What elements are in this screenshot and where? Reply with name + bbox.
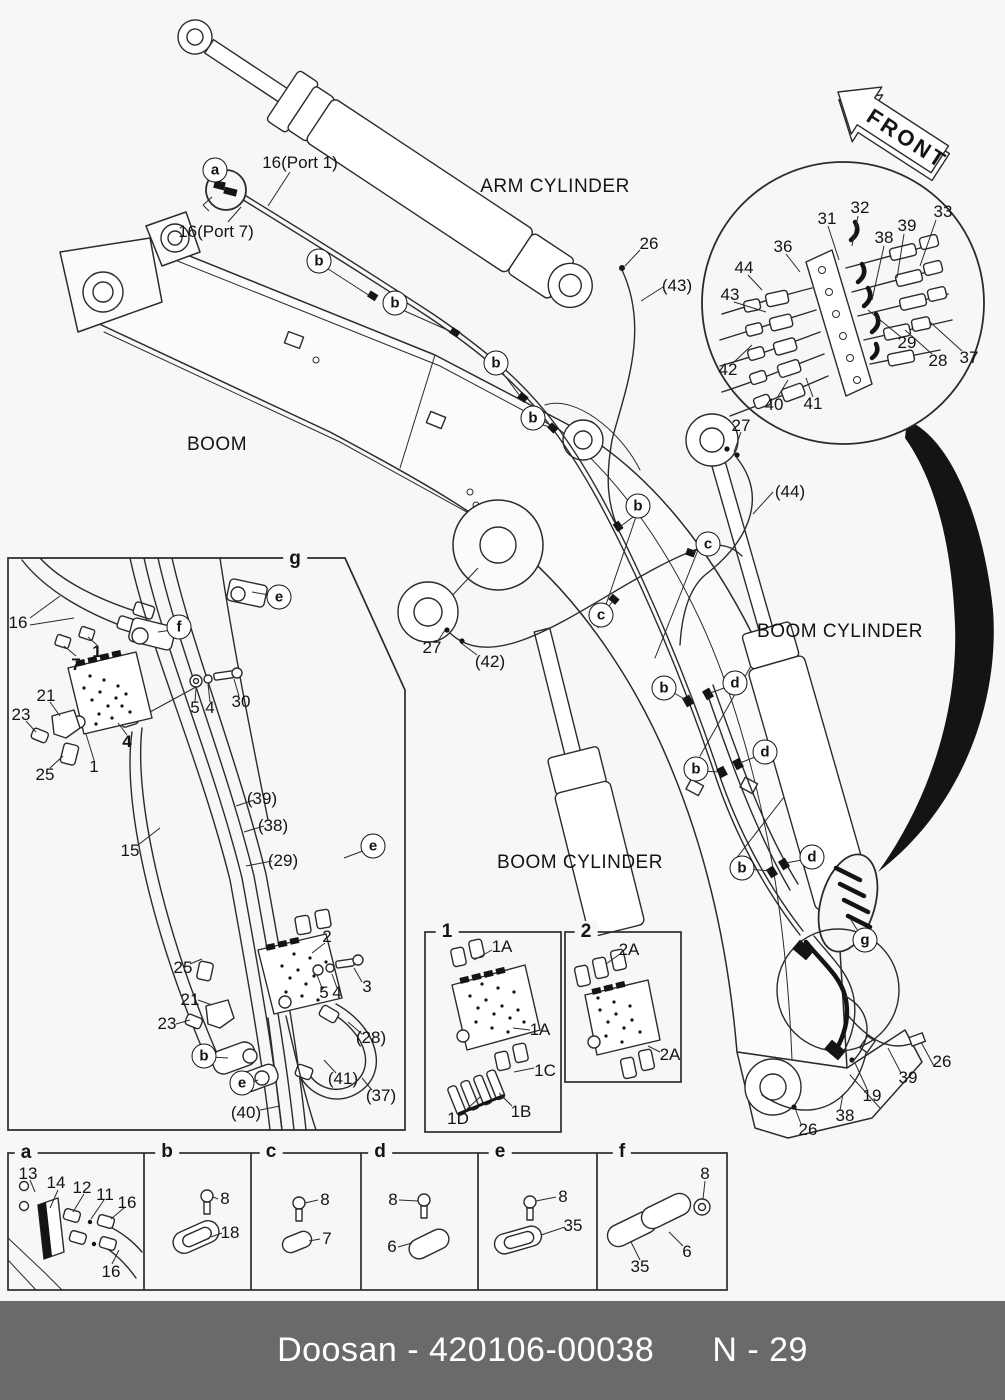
part-label: 12 [73, 1178, 92, 1198]
part-label: 4 [332, 983, 341, 1003]
part-label: 8 [558, 1187, 567, 1207]
callout-circle-b: b [684, 757, 709, 782]
part-label: 1 [89, 757, 98, 777]
part-label: 1 [92, 642, 101, 662]
callout-circle-g: g [853, 928, 878, 953]
part-label: 7 [322, 1229, 331, 1249]
component-label: BOOM [187, 434, 247, 456]
part-label: 35 [564, 1216, 583, 1236]
part-label: 4 [205, 698, 214, 718]
part-label: 15 [121, 841, 140, 861]
callout-circle-f: f [167, 615, 192, 640]
parts-diagram-page: FRONT [0, 0, 1005, 1400]
part-label: (43) [662, 276, 692, 296]
callout-circle-c: c [696, 532, 721, 557]
part-label: (42) [475, 652, 505, 672]
part-label: 42 [719, 360, 738, 380]
part-label: 3 [362, 977, 371, 997]
component-label: ARM CYLINDER [480, 176, 630, 198]
part-label: 28 [929, 351, 948, 371]
part-label: 41 [804, 394, 823, 414]
part-label: 25 [36, 765, 55, 785]
section-tag-f: f [613, 1141, 631, 1163]
part-label: 1B [511, 1102, 532, 1122]
component-label: BOOM CYLINDER [497, 852, 663, 874]
part-label: 39 [898, 216, 917, 236]
callout-circle-a: a [203, 158, 228, 183]
document-id: Doosan - 420106-00038 [277, 1331, 654, 1370]
part-label: (28) [356, 1028, 386, 1048]
part-label: 21 [37, 686, 56, 706]
label-overlay: 16(Port 1)16(Port 7)26(43)27(44)27(42)26… [0, 0, 1005, 1301]
part-label: 27 [732, 416, 751, 436]
part-label: 7 [71, 655, 80, 675]
part-label: 8 [220, 1189, 229, 1209]
part-label: (38) [258, 816, 288, 836]
part-label: 16 [9, 613, 28, 633]
callout-circle-e: e [361, 834, 386, 859]
section-tag-c: c [260, 1141, 283, 1163]
callout-circle-e: e [267, 585, 292, 610]
part-label: 31 [818, 209, 837, 229]
part-label: 40 [765, 395, 784, 415]
part-label: 16(Port 7) [178, 222, 254, 242]
part-label: 43 [721, 285, 740, 305]
part-label: 8 [388, 1190, 397, 1210]
part-label: 30 [232, 692, 251, 712]
part-label: 23 [12, 705, 31, 725]
part-label: 6 [387, 1237, 396, 1257]
part-label: 21 [181, 990, 200, 1010]
part-label: 27 [423, 638, 442, 658]
part-label: 25 [174, 958, 193, 978]
callout-circle-b: b [730, 856, 755, 881]
callout-circle-d: d [800, 845, 825, 870]
part-label: 8 [700, 1164, 709, 1184]
section-tag-1: 1 [436, 921, 459, 943]
callout-circle-b: b [307, 249, 332, 274]
part-label: 8 [320, 1190, 329, 1210]
part-label: 35 [631, 1257, 650, 1277]
page-number: N - 29 [712, 1331, 808, 1370]
part-label: 2A [619, 940, 640, 960]
part-label: (39) [247, 789, 277, 809]
component-label: BOOM CYLINDER [757, 621, 923, 643]
part-label: 1A [530, 1020, 551, 1040]
part-label: 44 [735, 258, 754, 278]
part-label: (40) [231, 1103, 261, 1123]
part-label: 16 [102, 1262, 121, 1282]
part-label: 38 [836, 1106, 855, 1126]
part-label: 39 [899, 1068, 918, 1088]
part-label: 26 [933, 1052, 952, 1072]
part-label: 13 [19, 1164, 38, 1184]
part-label: 1C [534, 1061, 556, 1081]
section-tag-b: b [155, 1141, 179, 1163]
part-label: 11 [96, 1185, 114, 1205]
part-label: 26 [640, 234, 659, 254]
callout-circle-b: b [383, 291, 408, 316]
part-label: 5 [319, 983, 328, 1003]
callout-circle-d: d [753, 740, 778, 765]
part-label: 1D [447, 1109, 469, 1129]
callout-circle-d: d [723, 671, 748, 696]
callout-circle-c: c [589, 603, 614, 628]
part-label: 4 [122, 732, 131, 752]
part-label: 2A [660, 1045, 681, 1065]
section-tag-d: d [368, 1141, 392, 1163]
section-tag-a: a [15, 1142, 38, 1164]
callout-circle-b: b [626, 494, 651, 519]
section-tag-2: 2 [575, 921, 598, 943]
part-label: 16 [118, 1193, 137, 1213]
part-label: 5 [190, 698, 199, 718]
callout-circle-b: b [192, 1044, 217, 1069]
part-label: 26 [799, 1120, 818, 1140]
part-label: 16(Port 1) [262, 153, 338, 173]
part-label: 37 [960, 348, 979, 368]
part-label: 18 [221, 1223, 240, 1243]
part-label: 6 [682, 1242, 691, 1262]
part-label: 33 [934, 202, 953, 222]
callout-circle-b: b [484, 351, 509, 376]
part-label: (44) [775, 482, 805, 502]
part-label: 14 [47, 1173, 66, 1193]
callout-circle-b: b [652, 676, 677, 701]
part-label: (29) [268, 851, 298, 871]
section-tag-e: e [489, 1141, 512, 1163]
part-label: (37) [366, 1086, 396, 1106]
callout-circle-e: e [230, 1071, 255, 1096]
callout-circle-b: b [521, 406, 546, 431]
part-label: 36 [774, 237, 793, 257]
part-label: 38 [875, 228, 894, 248]
part-label: 1A [492, 937, 513, 957]
part-label: 23 [158, 1014, 177, 1034]
part-label: 19 [863, 1086, 882, 1106]
part-label: 32 [851, 198, 870, 218]
section-tag-g: g [283, 548, 307, 570]
part-label: (41) [328, 1069, 358, 1089]
part-label: 29 [898, 333, 917, 353]
footer-bar: Doosan - 420106-00038 N - 29 [0, 1301, 1005, 1400]
part-label: 2 [322, 927, 331, 947]
